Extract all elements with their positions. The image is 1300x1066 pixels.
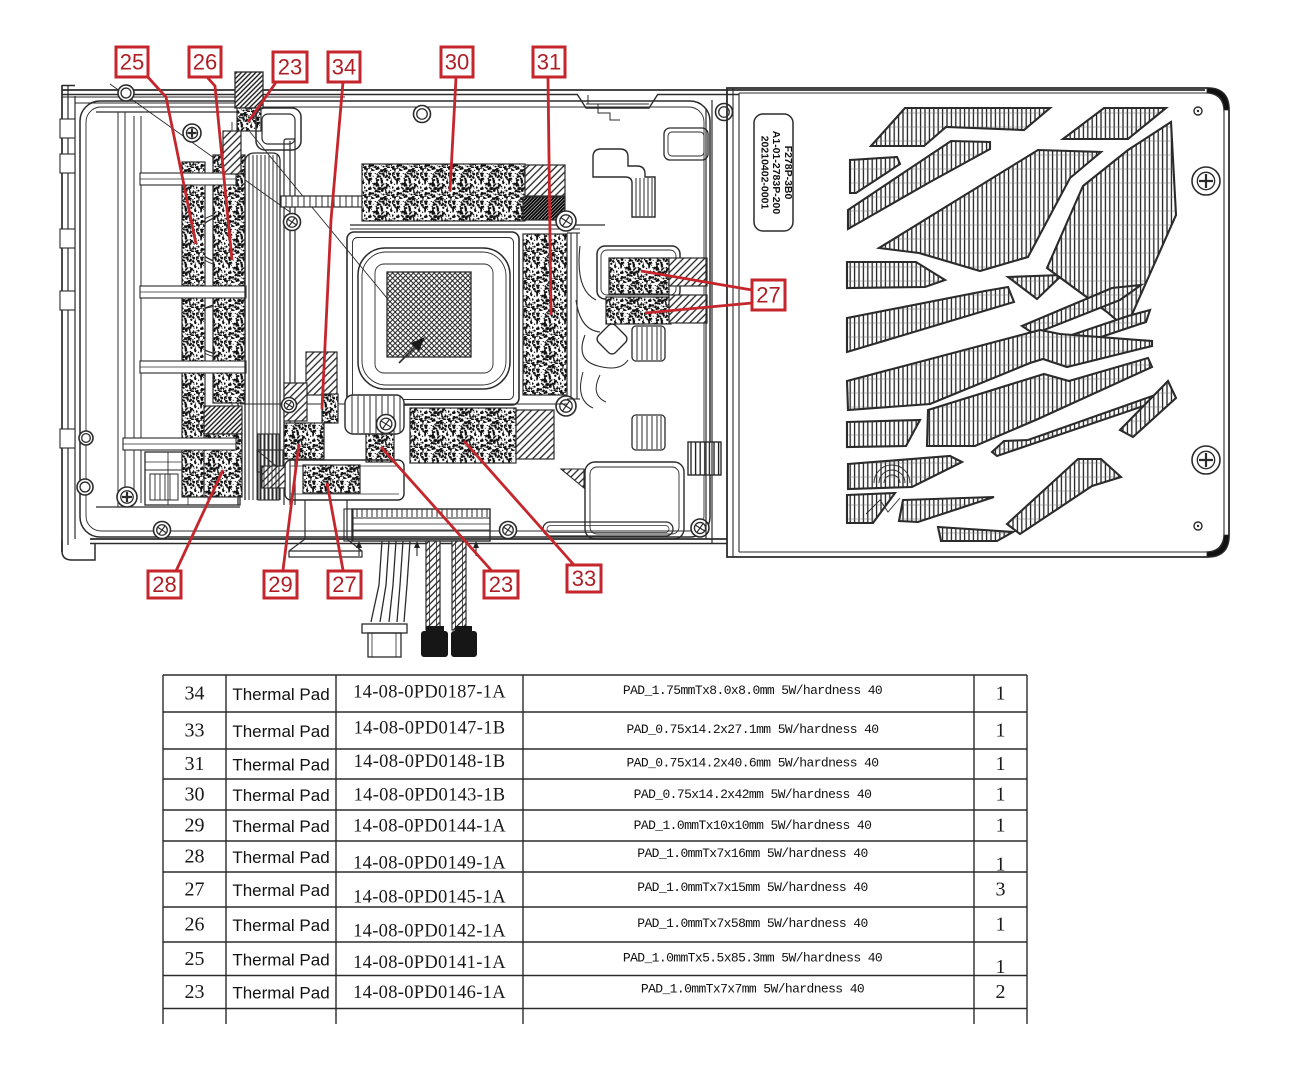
svg-text:PAD_1.0mmTx7x7mm 5W/hardness 4: PAD_1.0mmTx7x7mm 5W/hardness 40: [641, 982, 864, 997]
svg-text:1: 1: [996, 815, 1006, 837]
svg-text:31: 31: [537, 50, 561, 75]
svg-text:Thermal Pad: Thermal Pad: [232, 950, 329, 969]
svg-text:PAD_1.0mmTx7x15mm 5W/hardness: PAD_1.0mmTx7x15mm 5W/hardness 40: [637, 880, 867, 895]
svg-text:PAD_0.75x14.2x40.6mm 5W/hardne: PAD_0.75x14.2x40.6mm 5W/hardness 40: [626, 756, 878, 771]
svg-text:Thermal Pad: Thermal Pad: [232, 916, 329, 935]
svg-text:30: 30: [445, 50, 469, 75]
svg-text:25: 25: [185, 948, 205, 970]
svg-text:20210402-0001: 20210402-0001: [759, 136, 771, 210]
svg-text:14-08-0PD0149-1A: 14-08-0PD0149-1A: [353, 854, 506, 874]
svg-text:1: 1: [996, 914, 1006, 936]
svg-text:Thermal Pad: Thermal Pad: [232, 848, 329, 867]
svg-text:26: 26: [185, 914, 205, 936]
svg-text:14-08-0PD0141-1A: 14-08-0PD0141-1A: [353, 953, 506, 973]
svg-text:27: 27: [756, 283, 780, 308]
svg-text:3: 3: [996, 879, 1006, 901]
svg-text:23: 23: [489, 572, 513, 597]
svg-text:14-08-0PD0142-1A: 14-08-0PD0142-1A: [353, 922, 506, 942]
svg-text:29: 29: [268, 572, 292, 597]
svg-text:14-08-0PD0148-1B: 14-08-0PD0148-1B: [354, 752, 506, 772]
svg-text:28: 28: [185, 846, 205, 868]
svg-text:14-08-0PD0147-1B: 14-08-0PD0147-1B: [354, 719, 506, 739]
svg-text:30: 30: [185, 784, 205, 806]
svg-text:14-08-0PD0187-1A: 14-08-0PD0187-1A: [353, 683, 506, 703]
svg-text:31: 31: [185, 753, 205, 775]
svg-text:25: 25: [120, 50, 144, 75]
svg-text:PAD_1.0mmTx10x10mm 5W/hardness: PAD_1.0mmTx10x10mm 5W/hardness 40: [634, 818, 872, 833]
svg-text:27: 27: [332, 572, 356, 597]
svg-text:14-08-0PD0145-1A: 14-08-0PD0145-1A: [353, 888, 506, 908]
svg-text:PAD_1.75mmTx8.0x8.0mm 5W/hardn: PAD_1.75mmTx8.0x8.0mm 5W/hardness 40: [623, 683, 882, 698]
svg-text:PAD_0.75x14.2x42mm 5W/hardness: PAD_0.75x14.2x42mm 5W/hardness 40: [634, 787, 872, 802]
svg-text:14-08-0PD0144-1A: 14-08-0PD0144-1A: [353, 817, 506, 837]
svg-text:14-08-0PD0143-1B: 14-08-0PD0143-1B: [354, 786, 506, 806]
svg-text:34: 34: [332, 55, 356, 80]
svg-text:27: 27: [185, 879, 205, 901]
svg-text:34: 34: [185, 683, 205, 705]
svg-text:Thermal Pad: Thermal Pad: [232, 756, 329, 775]
svg-text:1: 1: [996, 683, 1006, 705]
svg-text:29: 29: [185, 815, 205, 837]
svg-text:26: 26: [193, 50, 217, 75]
svg-text:1: 1: [996, 956, 1006, 978]
svg-text:Thermal Pad: Thermal Pad: [232, 984, 329, 1003]
svg-text:2: 2: [996, 981, 1006, 1003]
svg-text:1: 1: [996, 720, 1006, 742]
svg-text:1: 1: [996, 854, 1006, 876]
svg-text:23: 23: [278, 55, 302, 80]
svg-text:28: 28: [152, 572, 176, 597]
svg-text:Thermal Pad: Thermal Pad: [232, 817, 329, 836]
svg-text:Thermal Pad: Thermal Pad: [232, 786, 329, 805]
svg-text:33: 33: [185, 720, 205, 742]
svg-text:F278P-3B0: F278P-3B0: [782, 146, 794, 200]
svg-text:A1-01-2783P-200: A1-01-2783P-200: [770, 131, 782, 215]
svg-text:23: 23: [185, 981, 205, 1003]
svg-text:33: 33: [572, 566, 596, 591]
svg-text:1: 1: [996, 753, 1006, 775]
svg-text:PAD_1.0mmTx7x16mm 5W/hardness: PAD_1.0mmTx7x16mm 5W/hardness 40: [637, 846, 867, 861]
svg-text:Thermal Pad: Thermal Pad: [232, 881, 329, 900]
svg-text:Thermal Pad: Thermal Pad: [232, 722, 329, 741]
svg-text:PAD_0.75x14.2x27.1mm 5W/hardne: PAD_0.75x14.2x27.1mm 5W/hardness 40: [626, 722, 878, 737]
svg-text:PAD_1.0mmTx5.5x85.3mm 5W/hardn: PAD_1.0mmTx5.5x85.3mm 5W/hardness 40: [623, 950, 882, 965]
svg-text:Thermal Pad: Thermal Pad: [232, 685, 329, 704]
svg-text:PAD_1.0mmTx7x58mm 5W/hardness: PAD_1.0mmTx7x58mm 5W/hardness 40: [637, 916, 867, 931]
svg-text:1: 1: [996, 784, 1006, 806]
svg-text:14-08-0PD0146-1A: 14-08-0PD0146-1A: [353, 983, 506, 1003]
